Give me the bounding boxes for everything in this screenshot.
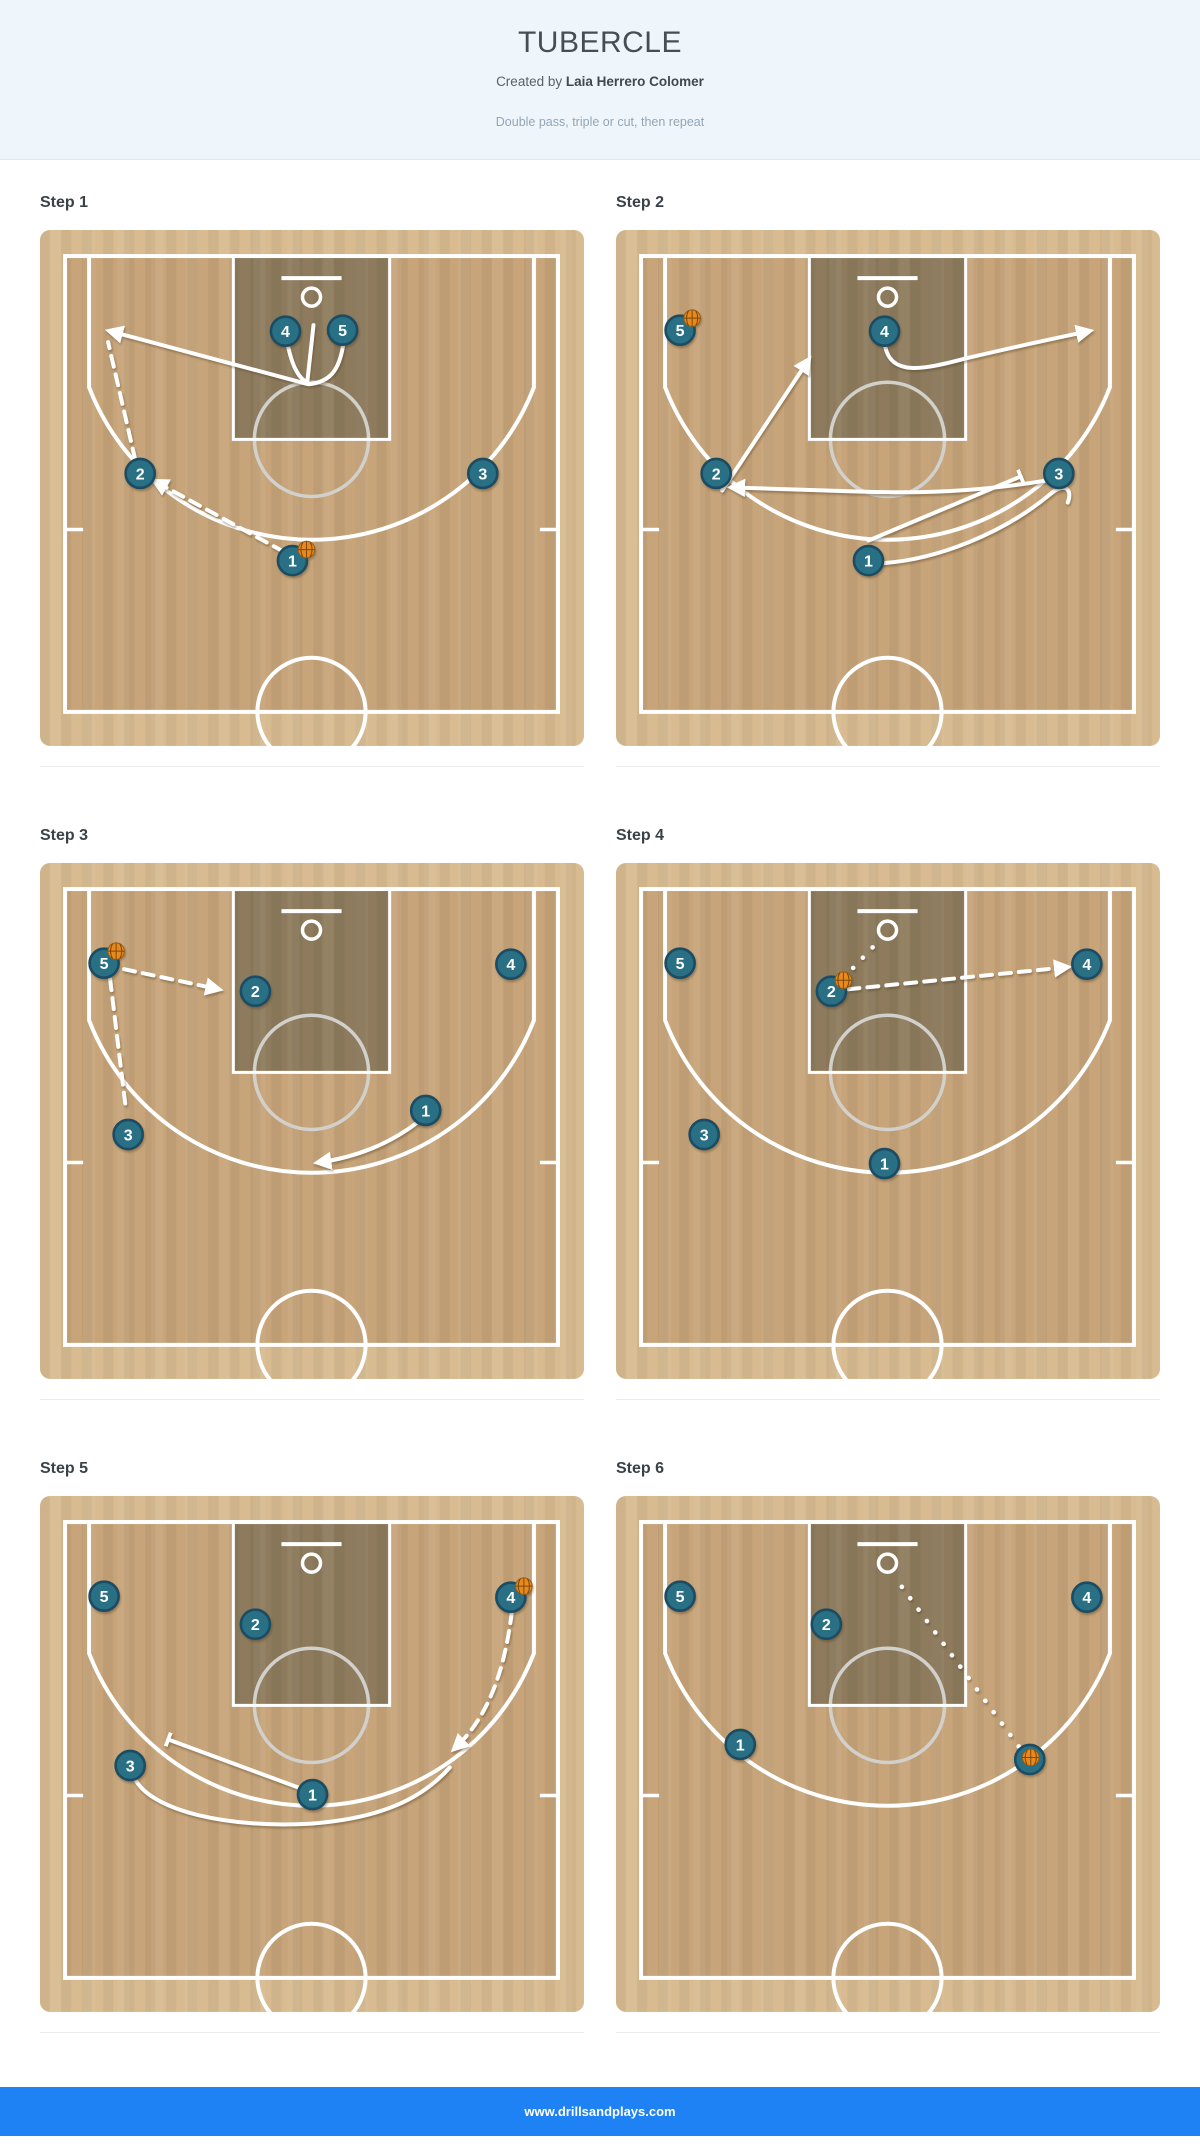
player-token-3: 3	[690, 1120, 719, 1149]
player-token-5: 5	[328, 316, 357, 345]
basketball-icon	[298, 541, 315, 558]
player-number: 3	[478, 465, 487, 483]
basketball-icon	[516, 1578, 533, 1595]
steps-row-3: Step 5 52431 Step 6 52413	[40, 1400, 1160, 2033]
basketball-icon	[1022, 1749, 1039, 1766]
player-number: 5	[100, 1588, 109, 1606]
player-number: 4	[1082, 1589, 1091, 1607]
player-token-3: 3	[116, 1751, 145, 1780]
player-token-1: 1	[854, 546, 883, 575]
steps-grid: Step 1 45231 Step 2 54231 Step 3 52431 S…	[0, 160, 1200, 2033]
step-section-4: Step 4 52431	[616, 767, 1160, 1400]
court-diagram-3: 52431	[40, 863, 584, 1379]
player-number: 3	[1054, 465, 1063, 483]
court-step-6: 52413	[616, 1496, 1160, 2012]
step-title-3: Step 3	[40, 827, 584, 845]
divider	[40, 2032, 584, 2033]
court-diagram-5: 52431	[40, 1496, 584, 2012]
step-title-4: Step 4	[616, 827, 1160, 845]
player-number: 5	[100, 955, 109, 973]
player-token-1: 1	[411, 1096, 440, 1125]
player-token-1: 1	[726, 1730, 755, 1759]
byline-prefix: Created by	[496, 74, 562, 89]
player-number: 5	[676, 322, 685, 340]
basketball-icon	[108, 943, 125, 960]
player-token-4: 4	[1072, 950, 1101, 979]
page-title: TUBERCLE	[0, 26, 1200, 60]
player-number: 1	[288, 552, 297, 570]
player-number: 5	[676, 955, 685, 973]
player-token-4: 4	[1072, 1583, 1101, 1612]
player-number: 2	[822, 1616, 831, 1634]
player-number: 4	[880, 323, 889, 341]
court-diagram-6: 52413	[616, 1496, 1160, 2012]
player-number: 1	[880, 1155, 889, 1173]
court-step-3: 52431	[40, 863, 584, 1379]
step-section-5: Step 5 52431	[40, 1400, 584, 2033]
player-token-5: 5	[90, 1582, 119, 1611]
player-token-2: 2	[702, 459, 731, 488]
player-number: 1	[421, 1102, 430, 1120]
player-number: 4	[1082, 956, 1091, 974]
divider	[616, 2032, 1160, 2033]
footer: www.drillsandplays.com	[0, 2087, 1200, 2136]
header: TUBERCLE Created by Laia Herrero Colomer…	[0, 0, 1200, 160]
step-section-6: Step 6 52413	[616, 1400, 1160, 2033]
court-step-5: 52431	[40, 1496, 584, 2012]
step-title-1: Step 1	[40, 194, 584, 212]
player-token-4: 4	[271, 317, 300, 346]
step-title-5: Step 5	[40, 1460, 584, 1478]
player-number: 2	[712, 465, 721, 483]
step-section-3: Step 3 52431	[40, 767, 584, 1400]
player-number: 4	[506, 956, 515, 974]
player-token-4: 4	[870, 317, 899, 346]
player-number: 3	[126, 1757, 135, 1775]
player-number: 3	[700, 1126, 709, 1144]
player-token-2: 2	[241, 977, 270, 1006]
footer-link[interactable]: www.drillsandplays.com	[524, 2104, 675, 2119]
player-number: 3	[124, 1126, 133, 1144]
step-section-1: Step 1 45231	[40, 160, 584, 767]
player-number: 5	[338, 322, 347, 340]
basketball-icon	[684, 310, 701, 327]
player-token-3: 3	[114, 1120, 143, 1149]
court-diagram-2: 54231	[616, 230, 1160, 746]
basketball-icon	[835, 972, 852, 989]
court-step-4: 52431	[616, 863, 1160, 1379]
player-number: 2	[136, 465, 145, 483]
player-token-2: 2	[241, 1610, 270, 1639]
page: TUBERCLE Created by Laia Herrero Colomer…	[0, 0, 1200, 2136]
drill-description: Double pass, triple or cut, then repeat	[0, 115, 1200, 129]
player-number: 2	[251, 1616, 260, 1634]
player-token-3: 3	[1044, 459, 1073, 488]
court-diagram-1: 45231	[40, 230, 584, 746]
player-number: 1	[308, 1786, 317, 1804]
player-token-2: 2	[812, 1610, 841, 1639]
player-token-2: 2	[126, 459, 155, 488]
player-token-1: 1	[870, 1149, 899, 1178]
court-step-2: 54231	[616, 230, 1160, 746]
player-number: 4	[506, 1589, 515, 1607]
court-step-1: 45231	[40, 230, 584, 746]
player-token-4: 4	[496, 950, 525, 979]
player-number: 1	[864, 552, 873, 570]
player-token-5: 5	[666, 949, 695, 978]
player-number: 4	[281, 323, 290, 341]
byline: Created by Laia Herrero Colomer	[0, 74, 1200, 89]
steps-row-2: Step 3 52431 Step 4 52431	[40, 767, 1160, 1400]
step-title-6: Step 6	[616, 1460, 1160, 1478]
player-number: 2	[827, 983, 836, 1001]
player-token-1: 1	[298, 1780, 327, 1809]
player-token-3: 3	[468, 459, 497, 488]
player-number: 5	[676, 1588, 685, 1606]
court-diagram-4: 52431	[616, 863, 1160, 1379]
step-section-2: Step 2 54231	[616, 160, 1160, 767]
player-token-5: 5	[666, 1582, 695, 1611]
step-title-2: Step 2	[616, 194, 1160, 212]
player-number: 2	[251, 983, 260, 1001]
player-number: 1	[736, 1736, 745, 1754]
steps-row-1: Step 1 45231 Step 2 54231	[40, 160, 1160, 767]
author-name: Laia Herrero Colomer	[566, 74, 704, 89]
